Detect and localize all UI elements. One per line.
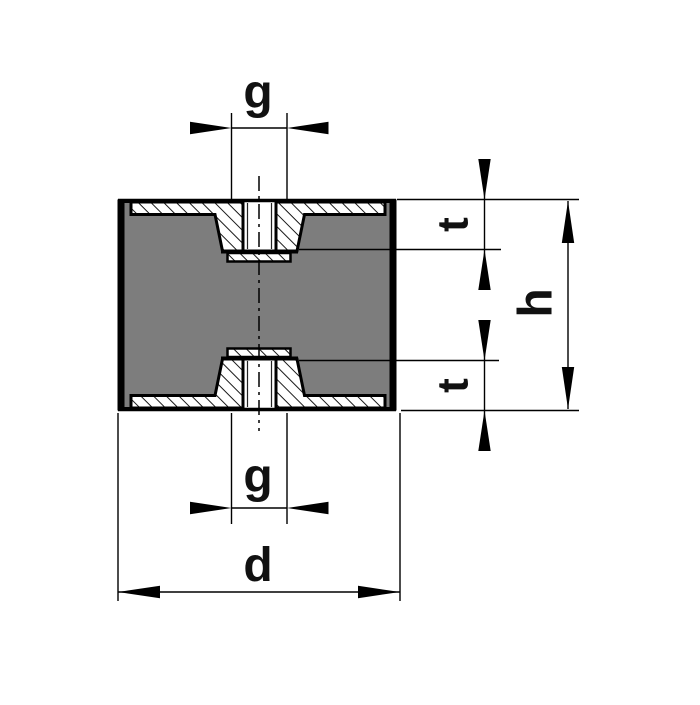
d-arrow-left-icon [118,586,160,598]
h-arrow-down-icon [562,367,574,409]
t-bottom-arrow-down-icon [478,320,490,361]
g-bottom-arrow-left-icon [190,502,232,514]
g-top-label: g [243,66,272,119]
t-top-label: t [429,217,478,232]
t-top-arrow-down-icon [478,159,490,200]
d-label: d [243,539,272,592]
t-bottom-label: t [429,378,478,393]
t-bottom-arrow-up-icon [478,411,490,452]
drawing-canvas: g g d h t t [0,0,700,700]
h-arrow-up-icon [562,201,574,243]
t-top-arrow-up-icon [478,250,490,291]
g-top-arrow-right-icon [287,122,329,134]
g-bottom-label: g [243,450,272,503]
technical-drawing: g g d h t t [0,0,700,700]
dimension-h: h [397,200,579,411]
g-top-arrow-left-icon [190,122,232,134]
h-label: h [510,288,563,317]
d-arrow-right-icon [358,586,400,598]
g-bottom-arrow-right-icon [287,502,329,514]
dimension-d: d [118,413,400,601]
